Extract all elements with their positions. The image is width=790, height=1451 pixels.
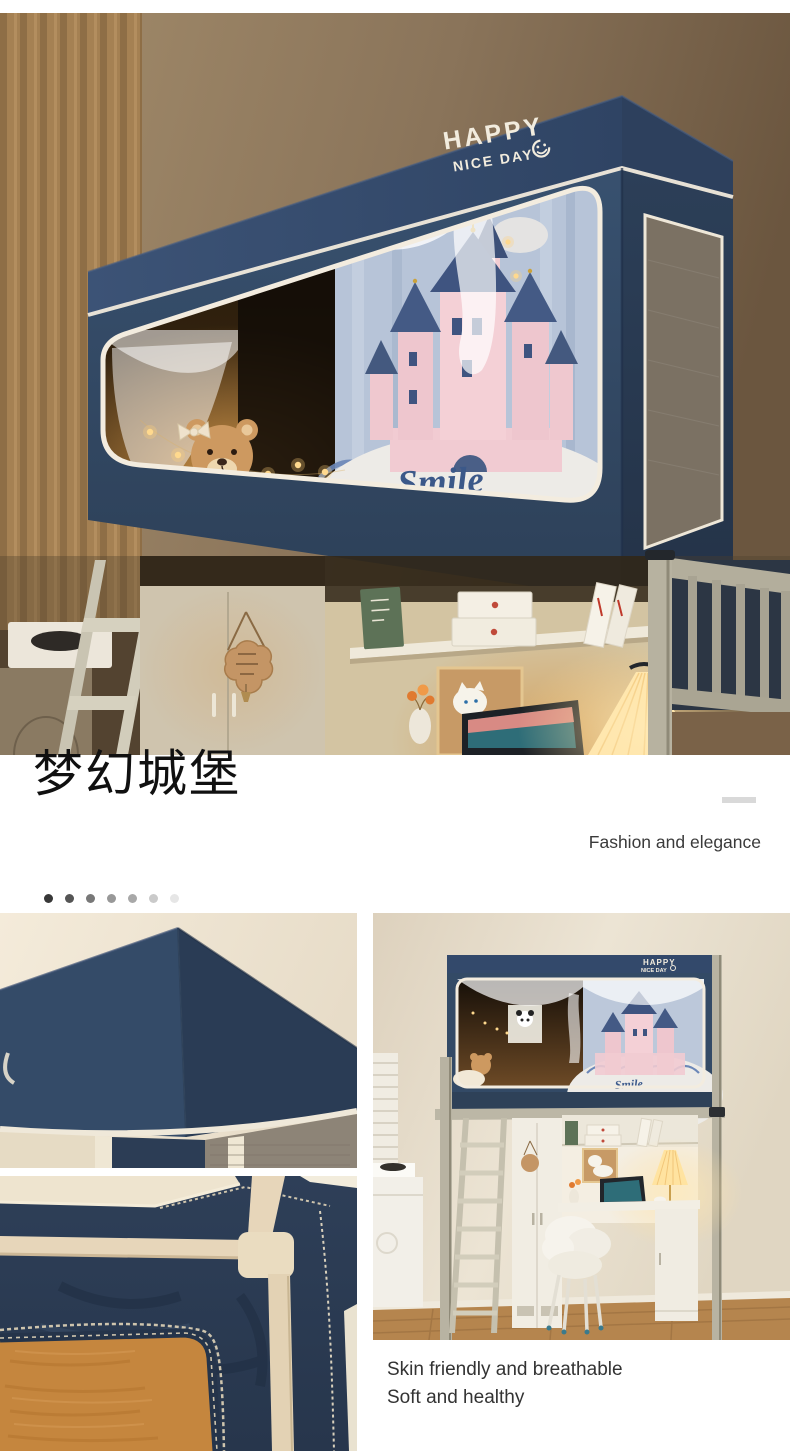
wardrobe bbox=[140, 556, 325, 755]
gallery-caption: Skin friendly and breathable Soft and he… bbox=[387, 1356, 623, 1411]
caption-line-2: Soft and healthy bbox=[387, 1384, 623, 1412]
pagination-dot-7 bbox=[170, 894, 179, 903]
mini-desk-cabinet bbox=[655, 1209, 698, 1321]
subtitle: Fashion and elegance bbox=[589, 832, 761, 853]
detail-image-room-scene: HAPPY NICE DAY bbox=[373, 913, 790, 1340]
pagination-dot-3 bbox=[86, 894, 95, 903]
pagination-dot-2 bbox=[65, 894, 74, 903]
pagination-dot-6 bbox=[149, 894, 158, 903]
mini-curtain-smile-text: Smile bbox=[614, 1077, 643, 1092]
storage-boxes bbox=[452, 592, 536, 646]
lower-furniture bbox=[0, 550, 790, 755]
detail-image-tent-corner bbox=[0, 913, 357, 1168]
caption-line-1: Skin friendly and breathable bbox=[387, 1356, 623, 1384]
side-mesh-window bbox=[645, 215, 722, 548]
pagination-dot-5 bbox=[128, 894, 137, 903]
detail-gallery: HAPPY NICE DAY bbox=[0, 913, 790, 1451]
orange-blanket bbox=[0, 1333, 218, 1451]
pagination-dot-1 bbox=[44, 894, 53, 903]
product-detail-page: HAPPY NICE DAY bbox=[0, 0, 790, 1451]
hero-scene: HAPPY NICE DAY bbox=[0, 0, 790, 755]
pagination-dots bbox=[44, 893, 179, 903]
window-blinds bbox=[373, 1053, 398, 1175]
mini-tent-logo-line1: HAPPY bbox=[643, 958, 676, 967]
calendar bbox=[360, 587, 404, 650]
hero-photo: HAPPY NICE DAY bbox=[0, 0, 790, 755]
title-section: 梦幻城堡 Fashion and elegance bbox=[0, 755, 790, 913]
bed-frame bbox=[645, 550, 790, 755]
page-title: 梦幻城堡 bbox=[33, 741, 241, 809]
detail-image-frame-closeup bbox=[0, 1176, 357, 1451]
washing-machine bbox=[373, 1163, 423, 1307]
pagination-dot-4 bbox=[107, 894, 116, 903]
accent-dash bbox=[722, 797, 756, 803]
